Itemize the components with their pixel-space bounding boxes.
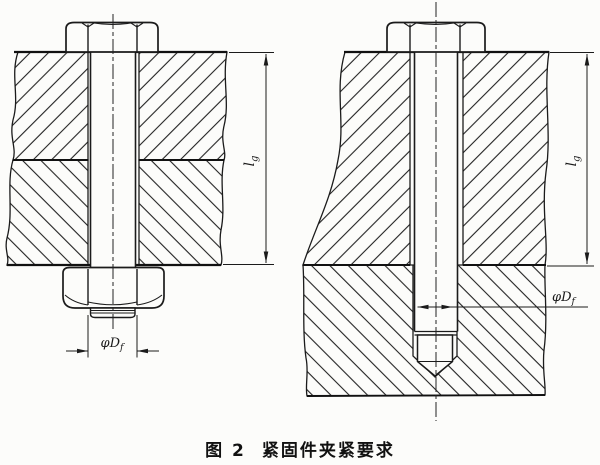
arrow-left-icon (137, 349, 148, 354)
upper-plate-right-section (463, 52, 549, 265)
standard-figure-page: lg φDf (0, 0, 600, 465)
upper-plate-right-section (139, 52, 227, 160)
arrow-up-icon (264, 54, 269, 66)
left-grip-length-dimension: lg (223, 53, 274, 265)
hole-diameter-label: φDf (100, 336, 125, 353)
upper-plate-left-section (303, 52, 410, 265)
right-view-bolt-in-tapped-hole: lg φDf (303, 2, 594, 421)
arrow-right-icon (77, 349, 88, 354)
upper-plate-left-section (12, 52, 88, 160)
figure-title: 紧固件夹紧要求 (262, 440, 395, 461)
grip-length-label: lg (564, 156, 583, 167)
right-grip-length-dimension: lg (547, 53, 594, 267)
figure-2-drawing: lg φDf (0, 0, 600, 465)
hex-bolt-head (66, 23, 158, 53)
lower-plate-left-section (6, 160, 88, 265)
arrow-up-icon (585, 54, 590, 66)
arrow-down-icon (585, 253, 590, 265)
lower-plate-right-section (139, 160, 224, 265)
block-bottom-line (307, 395, 545, 396)
hole-diameter-label: φDf (552, 290, 577, 307)
arrow-down-icon (264, 252, 269, 264)
figure-caption: 图 2紧固件夹紧要求 (205, 440, 395, 461)
left-view-bolt-and-nut: lg φDf (6, 14, 274, 358)
grip-length-label: lg (242, 156, 261, 167)
figure-number: 图 2 (205, 441, 246, 461)
